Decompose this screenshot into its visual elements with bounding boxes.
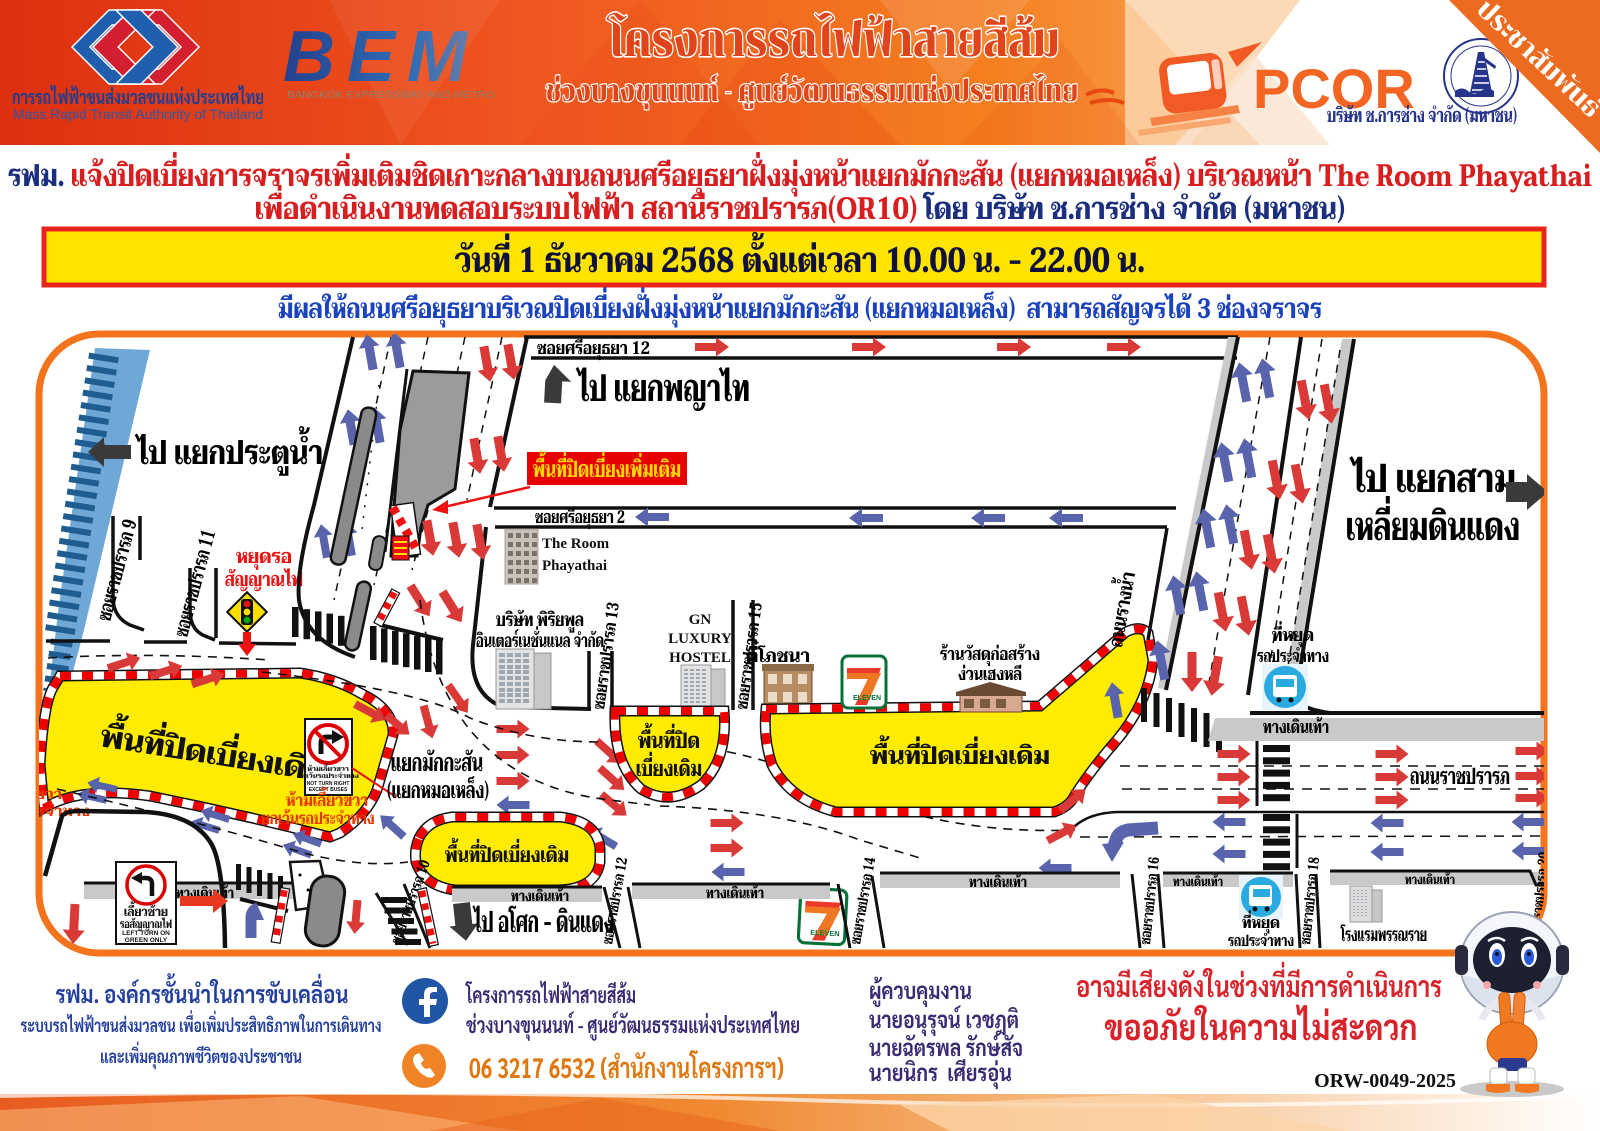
svg-text:GN: GN [689, 612, 712, 628]
svg-text:ORW-0049-2025: ORW-0049-2025 [1314, 1070, 1456, 1092]
svg-text:BANGKOK EXPRESSWAY AND METRO: BANGKOK EXPRESSWAY AND METRO [287, 90, 495, 101]
svg-text:PCOR: PCOR [1253, 57, 1415, 120]
svg-text:EXCEPT BUSES: EXCEPT BUSES [309, 787, 348, 793]
svg-text:Phayathai: Phayathai [542, 558, 607, 574]
svg-text:The Room: The Room [542, 536, 610, 552]
svg-text:Mass Rapid Transit Authority o: Mass Rapid Transit Authority of Thailand [13, 106, 263, 122]
svg-text:BEM: BEM [283, 17, 479, 97]
svg-text:LEFT TURN ON: LEFT TURN ON [122, 930, 170, 937]
svg-text:ELEVEN: ELEVEN [853, 695, 881, 702]
svg-text:ELEVEN: ELEVEN [810, 928, 840, 939]
svg-text:HOSTEL: HOSTEL [669, 650, 731, 666]
svg-text:GREEN ONLY: GREEN ONLY [125, 937, 168, 944]
svg-text:LUXURY: LUXURY [668, 631, 732, 647]
